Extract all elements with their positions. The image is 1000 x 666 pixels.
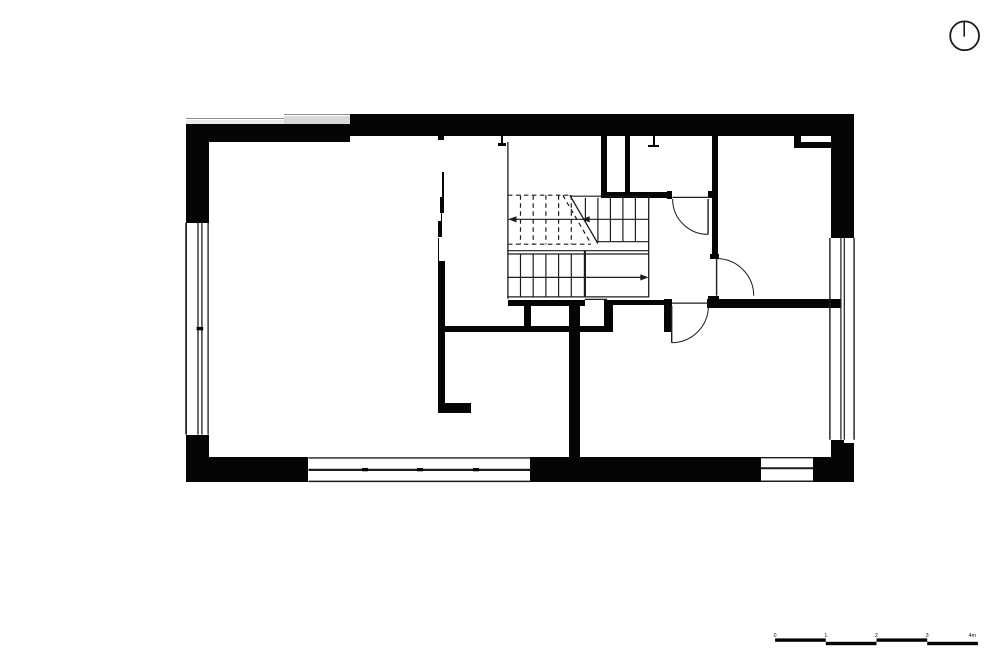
svg-text:2: 2 bbox=[875, 633, 878, 639]
svg-text:4m: 4m bbox=[969, 633, 977, 639]
svg-text:0: 0 bbox=[774, 633, 777, 639]
svg-text:3: 3 bbox=[926, 633, 929, 639]
svg-text:1: 1 bbox=[824, 633, 827, 639]
